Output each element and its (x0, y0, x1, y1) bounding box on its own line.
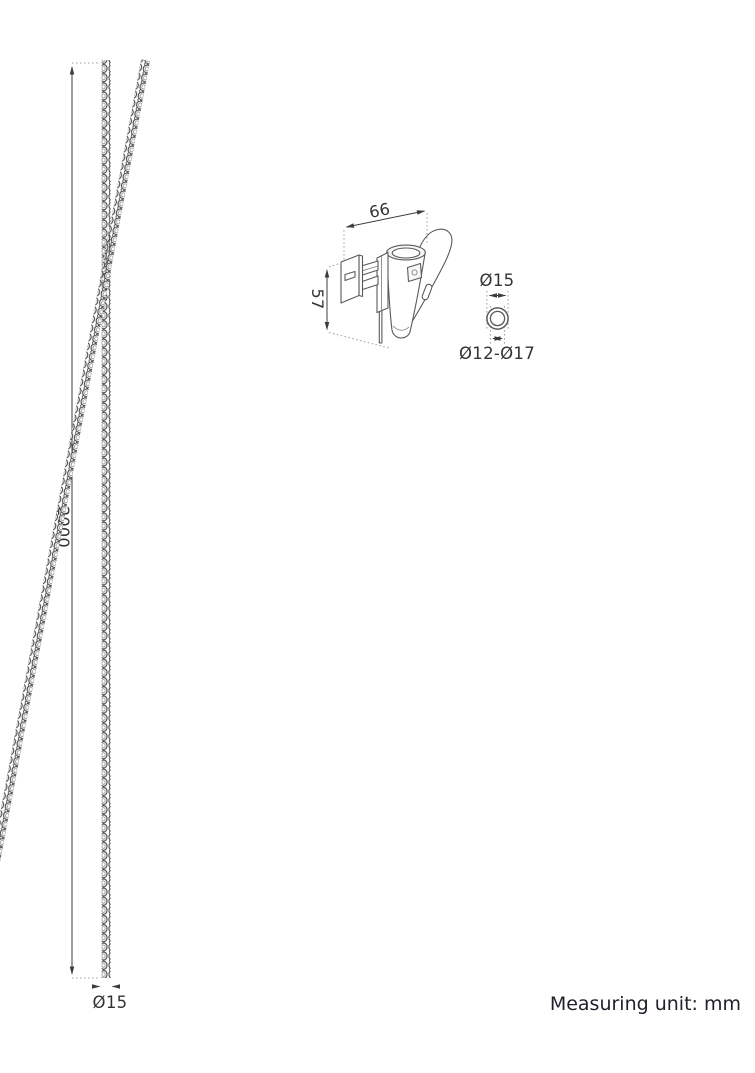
ring-inner-circle (490, 311, 504, 325)
bracket-height-label: 57 (308, 289, 327, 310)
measuring-unit-note: Measuring unit: mm (550, 993, 741, 1015)
drawing-canvas: 2000 Ø15 (0, 0, 755, 1073)
chain-diameter-label: Ø15 (93, 993, 128, 1012)
dimension-chain-diameter: Ø15 (93, 987, 128, 1013)
bracket-view (341, 229, 452, 343)
clamp-flange (377, 253, 388, 313)
clamp-pin (379, 310, 382, 343)
ring-detail: Ø15 Ø12-Ø17 (459, 271, 535, 363)
ring-outer-diameter-label: Ø15 (480, 271, 515, 290)
diagonal-chain (0, 59, 150, 948)
socket-rim-inner (392, 248, 420, 258)
vertical-chain (102, 60, 111, 978)
ring-fit-range-label: Ø12-Ø17 (459, 344, 535, 363)
technical-drawing: 2000 Ø15 (0, 0, 755, 1073)
